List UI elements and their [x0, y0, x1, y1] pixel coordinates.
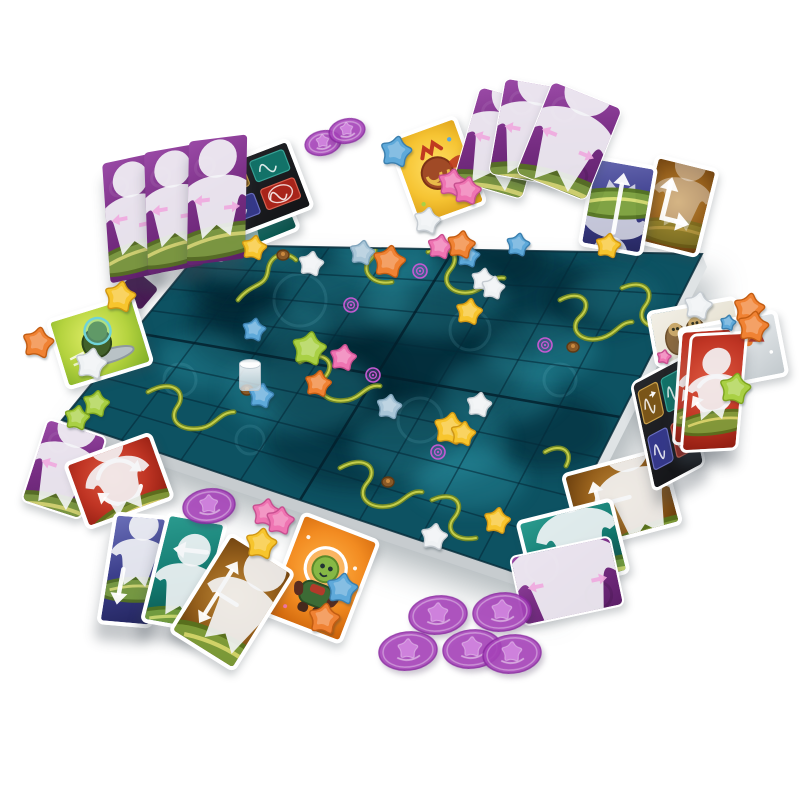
translucent-cup-token: [239, 362, 261, 391]
star-token-pink: [449, 173, 485, 209]
star-token-blue: [376, 132, 416, 172]
purple-disc-token: [180, 484, 238, 527]
star-token-yellow: [592, 230, 624, 262]
star-token-white: [680, 288, 716, 324]
star-token-orange: [18, 323, 58, 363]
star-token-blue: [239, 315, 269, 345]
star-token-lightblue: [373, 391, 405, 423]
star-token-yellow: [452, 295, 486, 329]
star-token-pink: [655, 348, 673, 366]
star-token-yellow: [447, 418, 479, 450]
purple-disc-token: [480, 631, 544, 677]
star-token-orange: [733, 307, 773, 347]
star-token-yellow: [238, 232, 270, 264]
star-token-yellow: [100, 277, 140, 317]
star-token-orange: [301, 367, 335, 401]
star-token-green: [287, 327, 331, 371]
purple-disc-token: [376, 628, 440, 674]
star-token-white: [295, 248, 327, 280]
star-token-green: [61, 402, 93, 434]
star-token-blue: [718, 313, 738, 333]
star-token-white: [71, 344, 111, 384]
star-token-blue: [503, 230, 533, 260]
star-token-orange: [443, 227, 479, 263]
star-token-orange: [368, 241, 410, 283]
star-token-yellow: [241, 524, 281, 564]
star-token-orange: [304, 599, 344, 639]
star-token-green: [715, 369, 755, 409]
board-game-photo: [0, 0, 800, 800]
star-token-yellow: [480, 504, 514, 538]
star-token-white: [417, 520, 451, 554]
